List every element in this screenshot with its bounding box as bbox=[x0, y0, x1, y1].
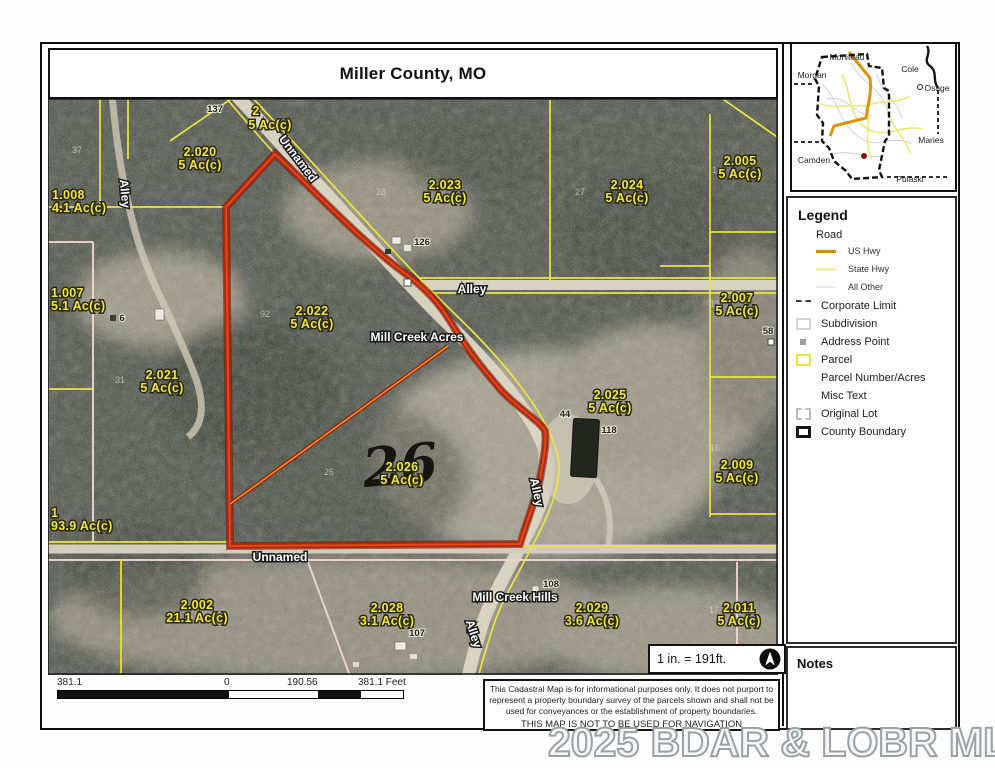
parcel-acres: 5 Ac(c) bbox=[178, 158, 221, 172]
cadastral-map-page: Miller County, MO bbox=[0, 0, 995, 768]
address-point-label: 107 bbox=[409, 628, 425, 639]
original-lot-icon bbox=[796, 408, 811, 420]
legend-item-county-boundary: County Boundary bbox=[796, 426, 955, 438]
legend-item-misc-text: Misc Text bbox=[796, 390, 955, 402]
legend-item-address-point: Address Point bbox=[796, 336, 955, 348]
legend-item-label: Original Lot bbox=[821, 408, 877, 420]
parcel-acres: 3.1 Ac(c) bbox=[360, 614, 414, 628]
notes-title: Notes bbox=[797, 656, 955, 671]
title-box: Miller County, MO bbox=[48, 48, 778, 99]
parcel-acres: 5 Ac(c) bbox=[718, 167, 761, 181]
road-label: Unnamed bbox=[253, 550, 308, 564]
osage-town-marker bbox=[918, 85, 923, 90]
legend-item-label: Misc Text bbox=[821, 390, 867, 402]
notes-panel: Notes bbox=[786, 646, 957, 730]
parcel-number: 2.021 bbox=[146, 368, 179, 382]
legend-item-label: Parcel bbox=[821, 354, 852, 366]
parcel-acres: 3.6 Ac(c) bbox=[565, 614, 619, 628]
parcel-acres: 5.1 Ac(c) bbox=[51, 299, 105, 313]
state-inset-box: Moniteau Morgan Cole Osage Maries Camden… bbox=[790, 42, 957, 192]
other-road-line-icon bbox=[816, 286, 836, 288]
disclaimer-line: This Cadastral Map is for informational … bbox=[485, 684, 778, 695]
road-label: Alley bbox=[117, 179, 133, 209]
scalebar-segment bbox=[361, 691, 403, 698]
county-label: Camden bbox=[798, 155, 830, 165]
legend-item-label: Address Point bbox=[821, 336, 889, 348]
parcel-acres: 5 Ac(c) bbox=[715, 471, 758, 485]
lot-number: 27 bbox=[575, 187, 585, 197]
legend-item-label: All Other bbox=[848, 282, 883, 292]
scalebar-labels: 381.1 0 190.56 381.1 Feet bbox=[0, 677, 480, 689]
corporate-limit-icon bbox=[796, 300, 811, 312]
parcel-number: 2.009 bbox=[721, 458, 754, 472]
no-icon bbox=[796, 372, 811, 384]
road-label: Alley bbox=[458, 282, 487, 296]
subdivision-icon bbox=[796, 318, 811, 330]
parcel-number: 2.028 bbox=[371, 601, 404, 615]
county-label: Morgan bbox=[798, 70, 827, 80]
legend-item-us-hwy: US Hwy bbox=[816, 246, 955, 256]
legend-item-label: County Boundary bbox=[821, 426, 906, 438]
parcel-number: 2 bbox=[252, 104, 259, 118]
map-area: 37 92 28 27 31 14 13 16 17 26 26 1.008 4… bbox=[48, 99, 778, 675]
scalebar-label: 0 bbox=[224, 677, 230, 688]
parcel-acres: 4.1 Ac(c) bbox=[52, 201, 106, 215]
lot-number: 26 bbox=[324, 467, 334, 477]
address-point-label: 108 bbox=[543, 579, 559, 590]
parcel-number: 1.008 bbox=[52, 188, 85, 202]
scale-ratio-text: 1 in. = 191ft. bbox=[657, 652, 726, 666]
parcel-acres: 5 Ac(c) bbox=[248, 118, 291, 132]
page-title: Miller County, MO bbox=[340, 64, 487, 84]
county-boundary-icon bbox=[796, 426, 811, 438]
legend-item-label: Subdivision bbox=[821, 318, 877, 330]
scalebar-segment bbox=[58, 691, 229, 698]
parcel-acres: 5 Ac(c) bbox=[715, 304, 758, 318]
subject-location-dot bbox=[861, 153, 867, 159]
parcel-number: 2.023 bbox=[429, 178, 462, 192]
lot-number: 31 bbox=[115, 375, 125, 385]
scale-ratio-box: 1 in. = 191ft. bbox=[648, 644, 786, 674]
subdivision-label: Mill Creek Acres bbox=[371, 330, 464, 344]
legend-item-original-lot: Original Lot bbox=[796, 408, 955, 420]
legend-panel: Legend Road US Hwy State Hwy All Other C… bbox=[786, 196, 957, 644]
parcel-number: 2.029 bbox=[576, 601, 609, 615]
scalebar-label: 381.1 bbox=[57, 677, 82, 688]
county-label: Moniteau bbox=[830, 52, 865, 62]
legend-item-label: State Hwy bbox=[848, 264, 889, 274]
legend-item-parcel-number: Parcel Number/Acres bbox=[796, 372, 955, 384]
legend-item-state-hwy: State Hwy bbox=[816, 264, 955, 274]
parcel-number: 1 bbox=[51, 506, 58, 520]
county-label: Osage bbox=[924, 83, 949, 93]
parcel-acres: 21.1 Ac(c) bbox=[166, 611, 228, 625]
legend-item-all-other: All Other bbox=[816, 282, 955, 292]
legend-item-label: Parcel Number/Acres bbox=[821, 372, 926, 384]
legend-item-label: US Hwy bbox=[848, 246, 881, 256]
no-icon bbox=[796, 390, 811, 402]
legend-road-group-label: Road bbox=[816, 229, 955, 241]
address-point-label: 126 bbox=[414, 237, 430, 248]
county-label: Pulaski bbox=[896, 174, 924, 184]
scalebar-segment bbox=[318, 691, 361, 698]
scalebar bbox=[57, 690, 404, 699]
address-point-label: 44 bbox=[560, 409, 571, 420]
north-arrow-icon bbox=[759, 648, 781, 670]
parcel-icon bbox=[796, 354, 811, 366]
address-point-label: 58 bbox=[763, 326, 774, 337]
county-label: Cole bbox=[901, 64, 919, 74]
scalebar-label: 381.1 Feet bbox=[358, 677, 406, 688]
disclaimer-line: represent a property boundary survey of … bbox=[485, 695, 778, 706]
parcel-number: 2.020 bbox=[184, 145, 217, 159]
scalebar-segment bbox=[229, 691, 318, 698]
parcel-number: 2.025 bbox=[594, 388, 627, 402]
address-point-icon bbox=[800, 339, 806, 345]
column-divider bbox=[782, 42, 784, 726]
lot-number: 16 bbox=[710, 443, 720, 453]
inset-us-hwy bbox=[830, 52, 871, 136]
county-locator-map: Moniteau Morgan Cole Osage Maries Camden… bbox=[792, 44, 955, 190]
parcel-acres: 5 Ac(c) bbox=[605, 191, 648, 205]
county-label: Maries bbox=[918, 135, 944, 145]
parcel-acres: 5 Ac(c) bbox=[588, 401, 631, 415]
parcel-number: 1.007 bbox=[51, 286, 84, 300]
parcel-acres: 5 Ac(c) bbox=[717, 614, 760, 628]
aerial-map: 37 92 28 27 31 14 13 16 17 26 26 1.008 4… bbox=[48, 99, 778, 675]
us-hwy-line-icon bbox=[816, 250, 836, 253]
aerial-texture: 37 92 28 27 31 14 13 16 17 26 26 1.008 4… bbox=[48, 99, 778, 675]
parcel-acres: 93.9 Ac(c) bbox=[51, 519, 113, 533]
scalebar-label: 190.56 bbox=[287, 677, 318, 688]
lot-number: 37 bbox=[72, 145, 82, 155]
address-point-label: 137 bbox=[207, 104, 223, 115]
legend-item-label: Corporate Limit bbox=[821, 300, 896, 312]
disclaimer-line: used for conveyances or the establishmen… bbox=[485, 706, 778, 717]
address-point-label: 6 bbox=[119, 313, 124, 324]
legend-item-subdivision: Subdivision bbox=[796, 318, 955, 330]
lot-number: 28 bbox=[376, 187, 386, 197]
parcel-number: 2.002 bbox=[181, 598, 214, 612]
parcel-acres: 5 Ac(c) bbox=[423, 191, 466, 205]
parcel-acres: 5 Ac(c) bbox=[140, 381, 183, 395]
state-hwy-line-icon bbox=[816, 268, 836, 271]
parcel-number: 2.011 bbox=[723, 601, 755, 615]
mls-watermark: 2025 BDAR & LOBR MLS bbox=[548, 719, 995, 766]
parcel-number: 2.026 bbox=[386, 460, 419, 474]
legend-item-parcel: Parcel bbox=[796, 354, 955, 366]
address-point-label: 118 bbox=[601, 425, 616, 436]
parcel-number: 2.022 bbox=[296, 304, 329, 318]
parcel-number: 2.005 bbox=[724, 154, 757, 168]
parcel-acres: 5 Ac(c) bbox=[380, 473, 423, 487]
legend-item-corporate-limit: Corporate Limit bbox=[796, 300, 955, 312]
lot-number: 92 bbox=[260, 309, 270, 319]
parcel-number: 2.007 bbox=[721, 291, 754, 305]
parcel-acres: 5 Ac(c) bbox=[290, 317, 333, 331]
parcel-number: 2.024 bbox=[611, 178, 644, 192]
subdivision-label: Mill Creek Hills bbox=[472, 590, 558, 604]
legend-title: Legend bbox=[798, 207, 955, 223]
